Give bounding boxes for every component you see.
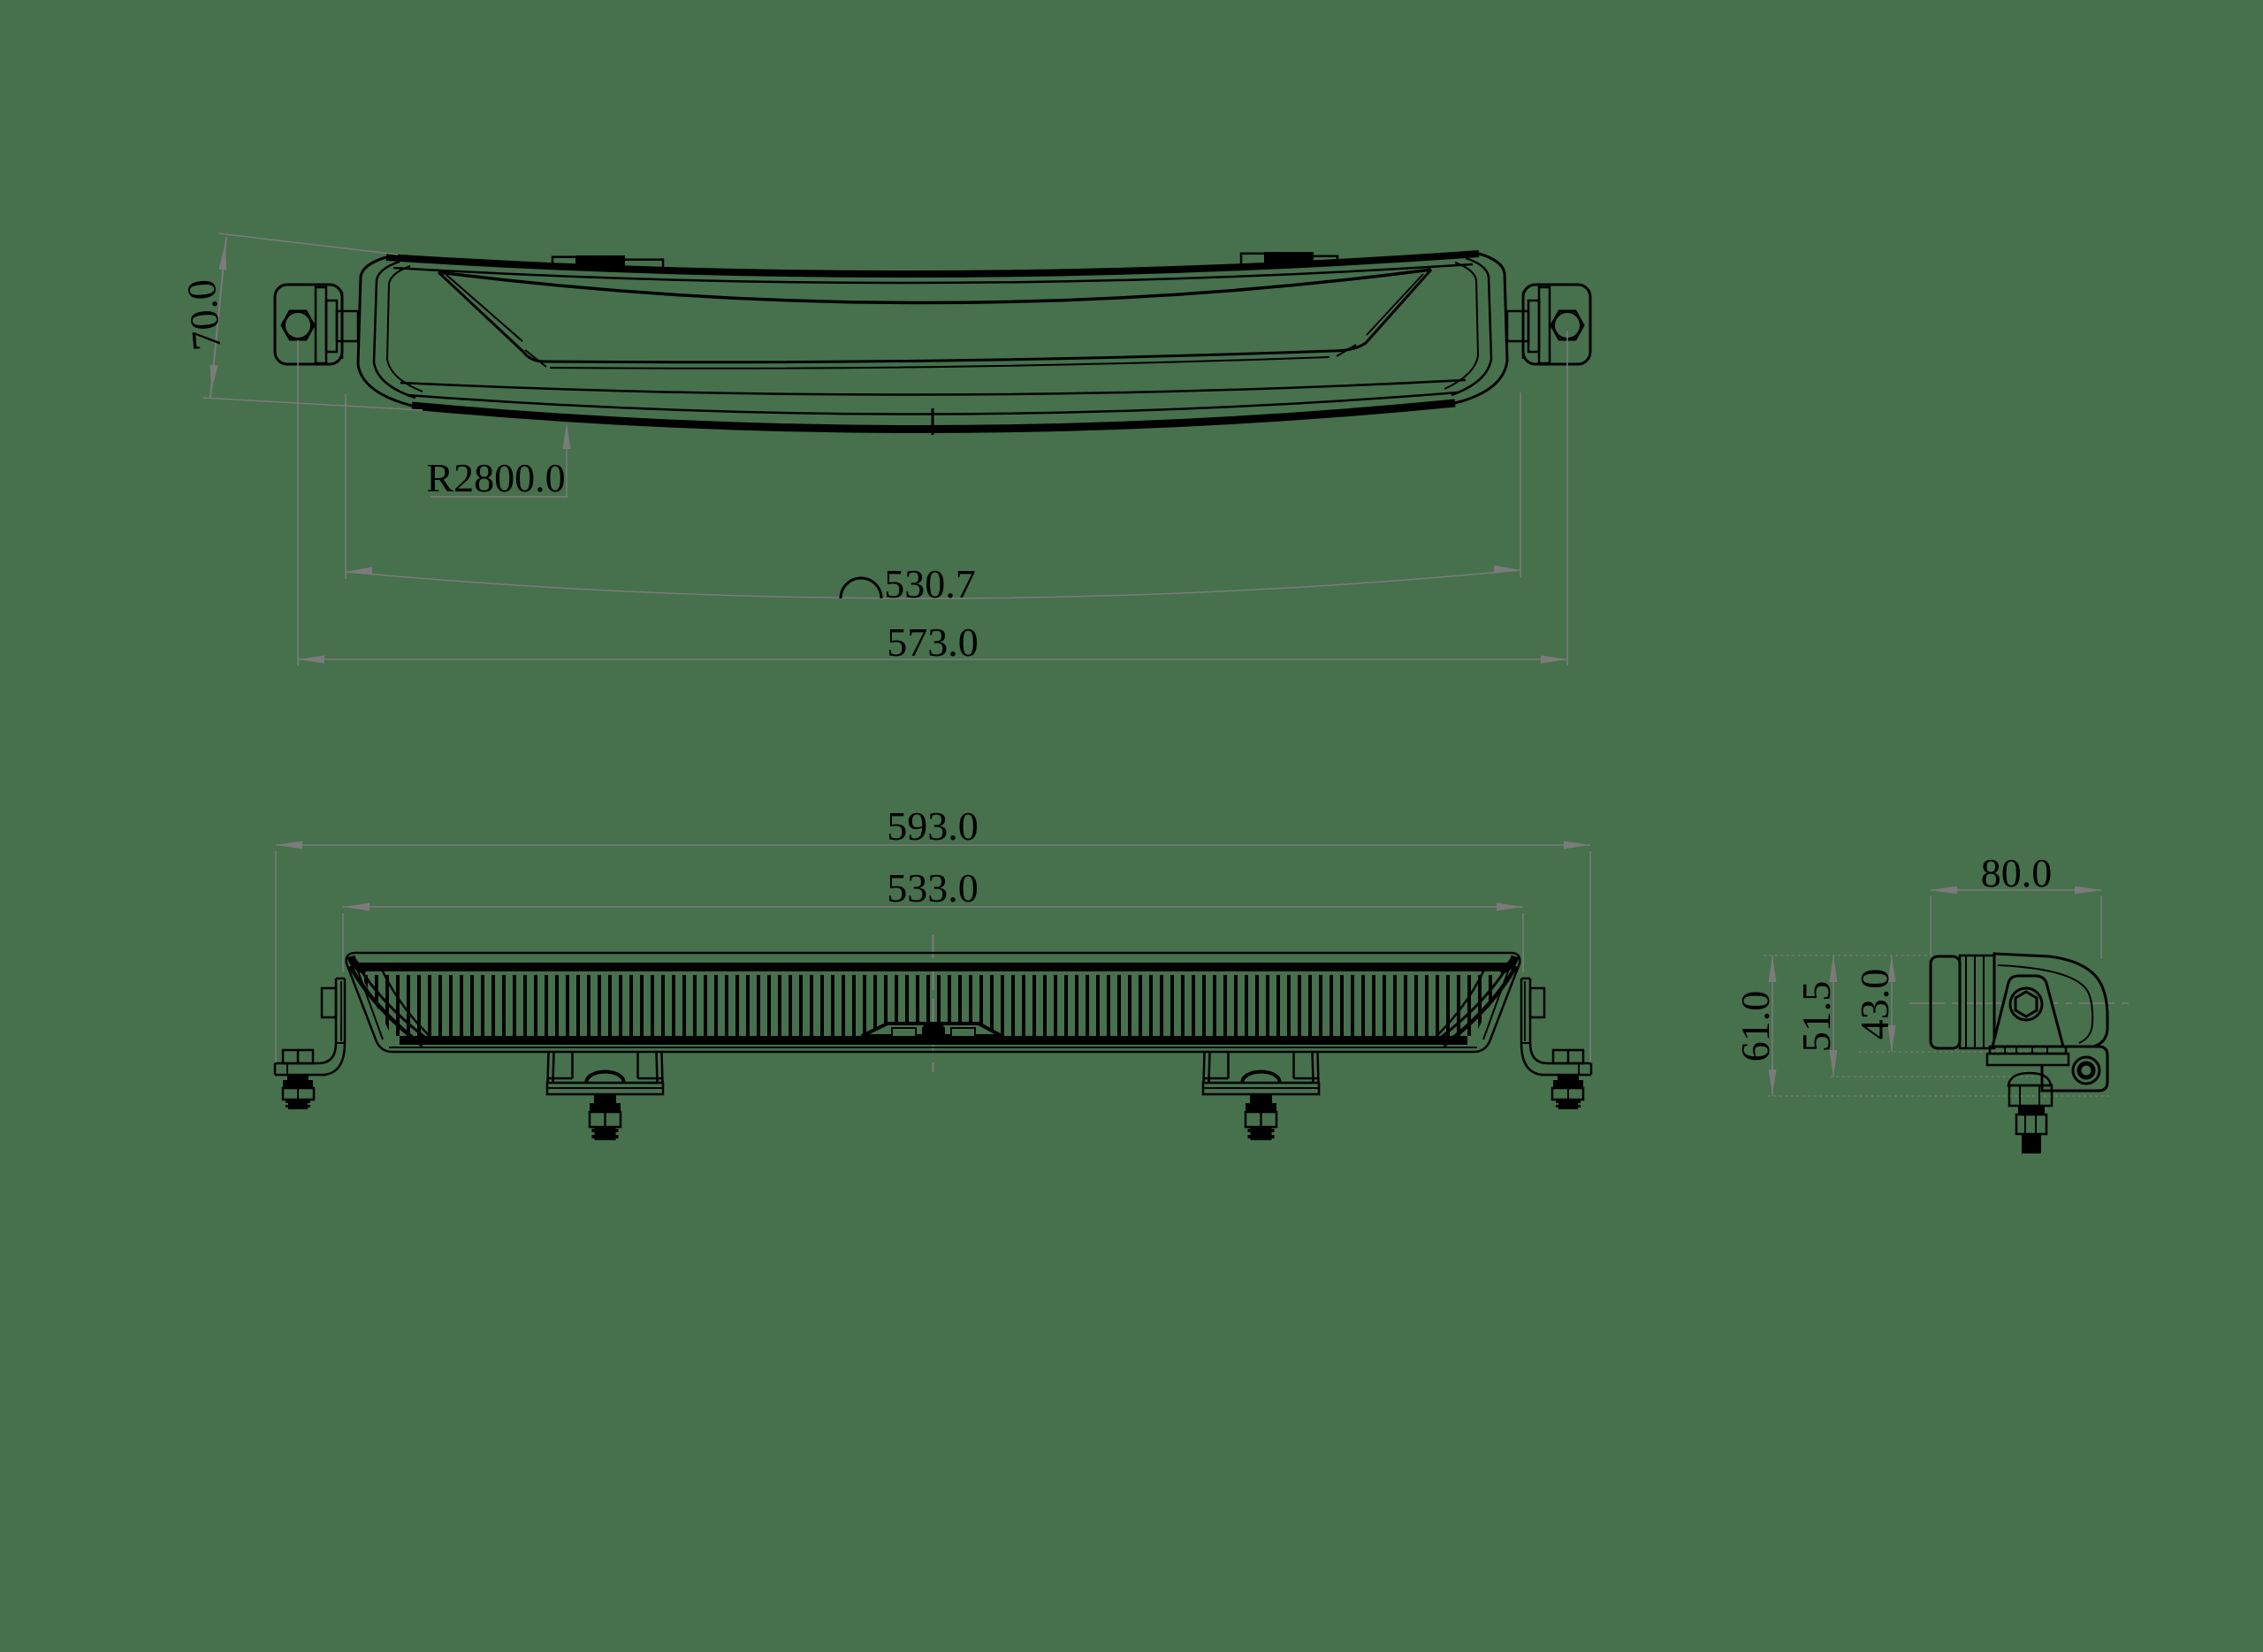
svg-text:593.0: 593.0 <box>887 803 979 849</box>
svg-text:R2800.0: R2800.0 <box>426 455 565 500</box>
svg-text:51.5: 51.5 <box>1794 981 1839 1053</box>
svg-text:530.7: 530.7 <box>884 561 976 606</box>
svg-text:573.0: 573.0 <box>887 620 979 665</box>
svg-text:61.0: 61.0 <box>1733 991 1778 1062</box>
svg-text:80.0: 80.0 <box>1981 850 2053 895</box>
svg-text:533.0: 533.0 <box>887 865 979 910</box>
svg-text:70.0: 70.0 <box>179 278 230 353</box>
svg-text:43.0: 43.0 <box>1852 969 1897 1040</box>
